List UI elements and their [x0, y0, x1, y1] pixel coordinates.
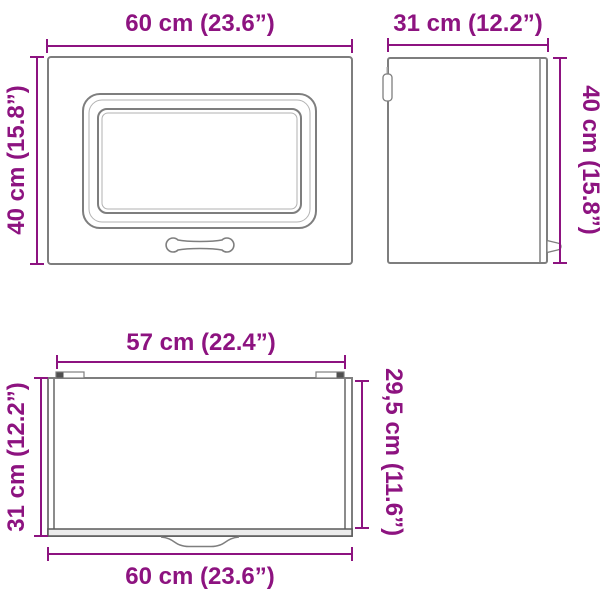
front-view: 60 cm (23.6”) 40 cm (15.8”)	[3, 10, 352, 264]
side-knob	[547, 241, 561, 253]
hinge-bracket	[383, 74, 392, 101]
top-inner-width-label: 57 cm (22.4”)	[126, 329, 275, 356]
product-dimension-diagram: 60 cm (23.6”) 40 cm (15.8”) 31 cm (12.2”…	[0, 0, 600, 600]
side-view: 31 cm (12.2”) 40 cm (15.8”)	[383, 10, 600, 263]
top-width-label: 60 cm (23.6”)	[125, 563, 274, 590]
front-height-label: 40 cm (15.8”)	[3, 85, 30, 234]
cabinet-top-outline	[48, 378, 352, 536]
side-height-label: 40 cm (15.8”)	[577, 85, 600, 234]
hinge-block-right-cap	[337, 373, 344, 378]
top-depth-label: 31 cm (12.2”)	[3, 382, 30, 531]
top-view-handle	[161, 537, 239, 547]
front-width-label: 60 cm (23.6”)	[125, 10, 274, 37]
cabinet-side-outline	[388, 58, 547, 263]
hinge-block-left-cap	[57, 373, 64, 378]
cabinet-front-outline	[48, 57, 352, 264]
side-depth-label: 31 cm (12.2”)	[393, 10, 542, 37]
dimension-diagram-canvas: 60 cm (23.6”) 40 cm (15.8”) 31 cm (12.2”…	[0, 0, 600, 600]
top-inner-depth-label: 29,5 cm (11.6”)	[380, 368, 407, 536]
door-strip	[48, 529, 352, 536]
top-view: 57 cm (22.4”) 31 cm (12.2”) 29,5 cm (11.…	[3, 329, 407, 590]
